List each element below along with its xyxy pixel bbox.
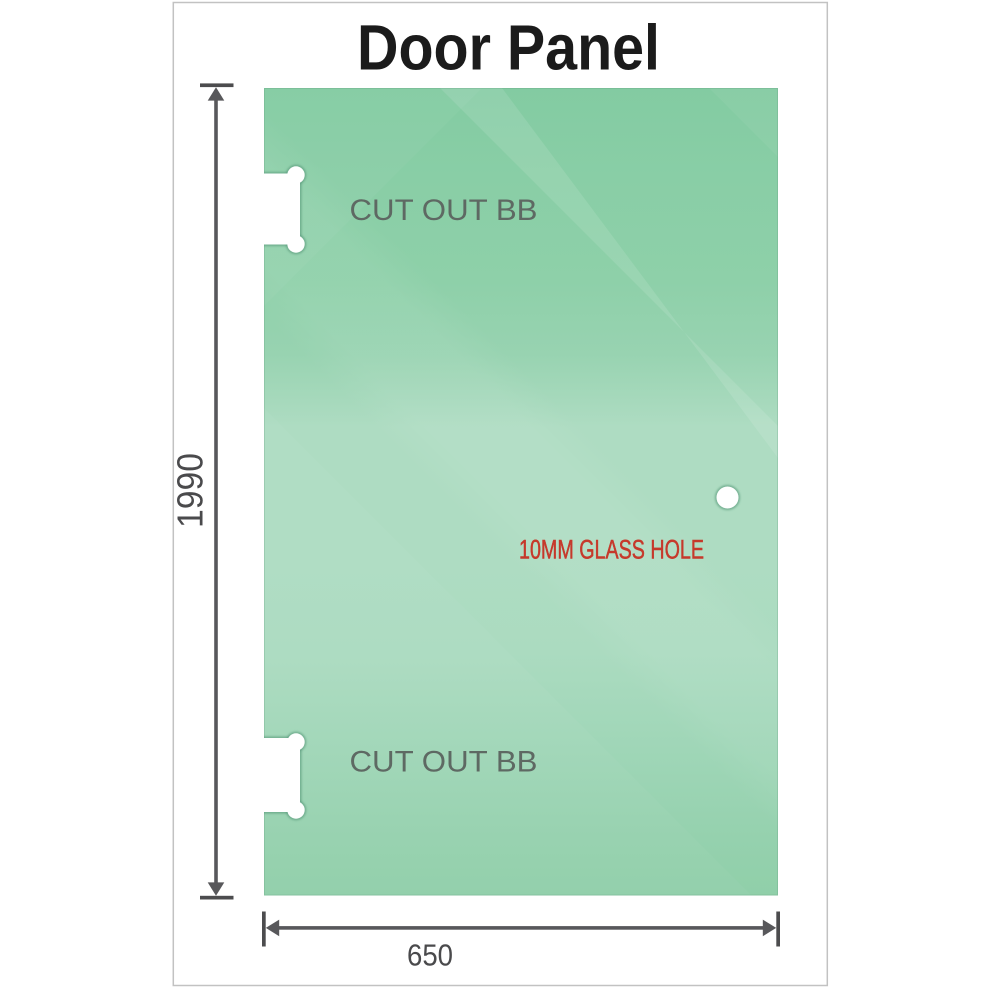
svg-text:CUT OUT BB: CUT OUT BB [350, 746, 538, 779]
svg-text:650: 650 [407, 938, 453, 973]
svg-text:10MM GLASS HOLE: 10MM GLASS HOLE [519, 535, 704, 565]
svg-text:CUT OUT BB: CUT OUT BB [350, 194, 538, 227]
svg-text:1990: 1990 [170, 453, 211, 528]
svg-text:Door Panel: Door Panel [357, 12, 660, 84]
